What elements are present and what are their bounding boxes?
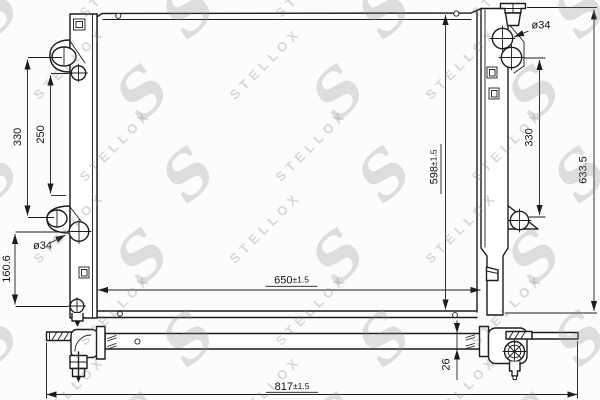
right-bracket-strip	[532, 333, 578, 340]
outlet-stub	[510, 362, 521, 380]
dim-text-left-dia34: ø34	[33, 240, 52, 252]
right-tank-square-hole-1	[487, 67, 497, 78]
right-tank-square-hole-2	[489, 88, 499, 99]
dim-text-core-width: 650±1.5	[274, 275, 309, 287]
dimension-core-width-650: 650±1.5	[98, 275, 481, 291]
left-tank-top-square-hole	[74, 19, 86, 30]
dim-text-left-160-6: 160.6	[1, 255, 13, 283]
dim-text-left-330: 330	[12, 128, 24, 146]
left-upper-oval-hole	[52, 47, 76, 66]
outlet-flange	[480, 327, 489, 357]
bottom-view: 26 817±1.5	[47, 321, 579, 399]
inlet-flange	[97, 327, 106, 360]
bottom-view-core-bar	[105, 334, 481, 350]
outlet-pipe-assembly	[466, 327, 578, 380]
left-tank-lower-square-hole	[79, 267, 89, 278]
dim-text-overall-height: 633.5	[578, 156, 590, 184]
core-bottom-right-hole	[453, 313, 458, 318]
bottom-bar-left-hole	[135, 339, 140, 344]
dim-text-overall-width: 817±1.5	[275, 381, 310, 393]
inlet-elbow	[71, 330, 98, 358]
right-tank	[481, 4, 538, 316]
left-lower-oval-hole	[47, 210, 67, 227]
core-bottom-left-hole	[118, 311, 123, 316]
dim-text-right-330: 330	[524, 128, 536, 146]
dimension-core-height-598: 598±1.5	[429, 15, 446, 310]
left-tank	[47, 14, 97, 327]
dim-text-core-thickness: 26	[441, 358, 453, 370]
dimension-right-330: 330	[524, 58, 546, 217]
right-tank-tab	[487, 267, 499, 281]
front-view: 330 250 160.6 ø34	[1, 4, 597, 328]
radiator-core	[97, 9, 481, 319]
dim-text-left-250: 250	[35, 125, 47, 143]
core-top-left-hole	[116, 13, 121, 18]
dimension-label-left-dia34: ø34	[33, 235, 65, 252]
dim-text-right-dia34: ø34	[532, 20, 551, 32]
dimension-left-250: 250	[35, 74, 69, 196]
radiator-technical-drawing-page: 330 250 160.6 ø34	[0, 0, 600, 400]
dim-text-core-height: 598±1.5	[429, 149, 441, 184]
drain-plug	[70, 352, 87, 383]
dimension-core-thickness-26: 26	[441, 321, 463, 381]
core-top-right-hole	[454, 11, 459, 16]
radiator-technical-drawing: 330 250 160.6 ø34	[0, 0, 600, 400]
